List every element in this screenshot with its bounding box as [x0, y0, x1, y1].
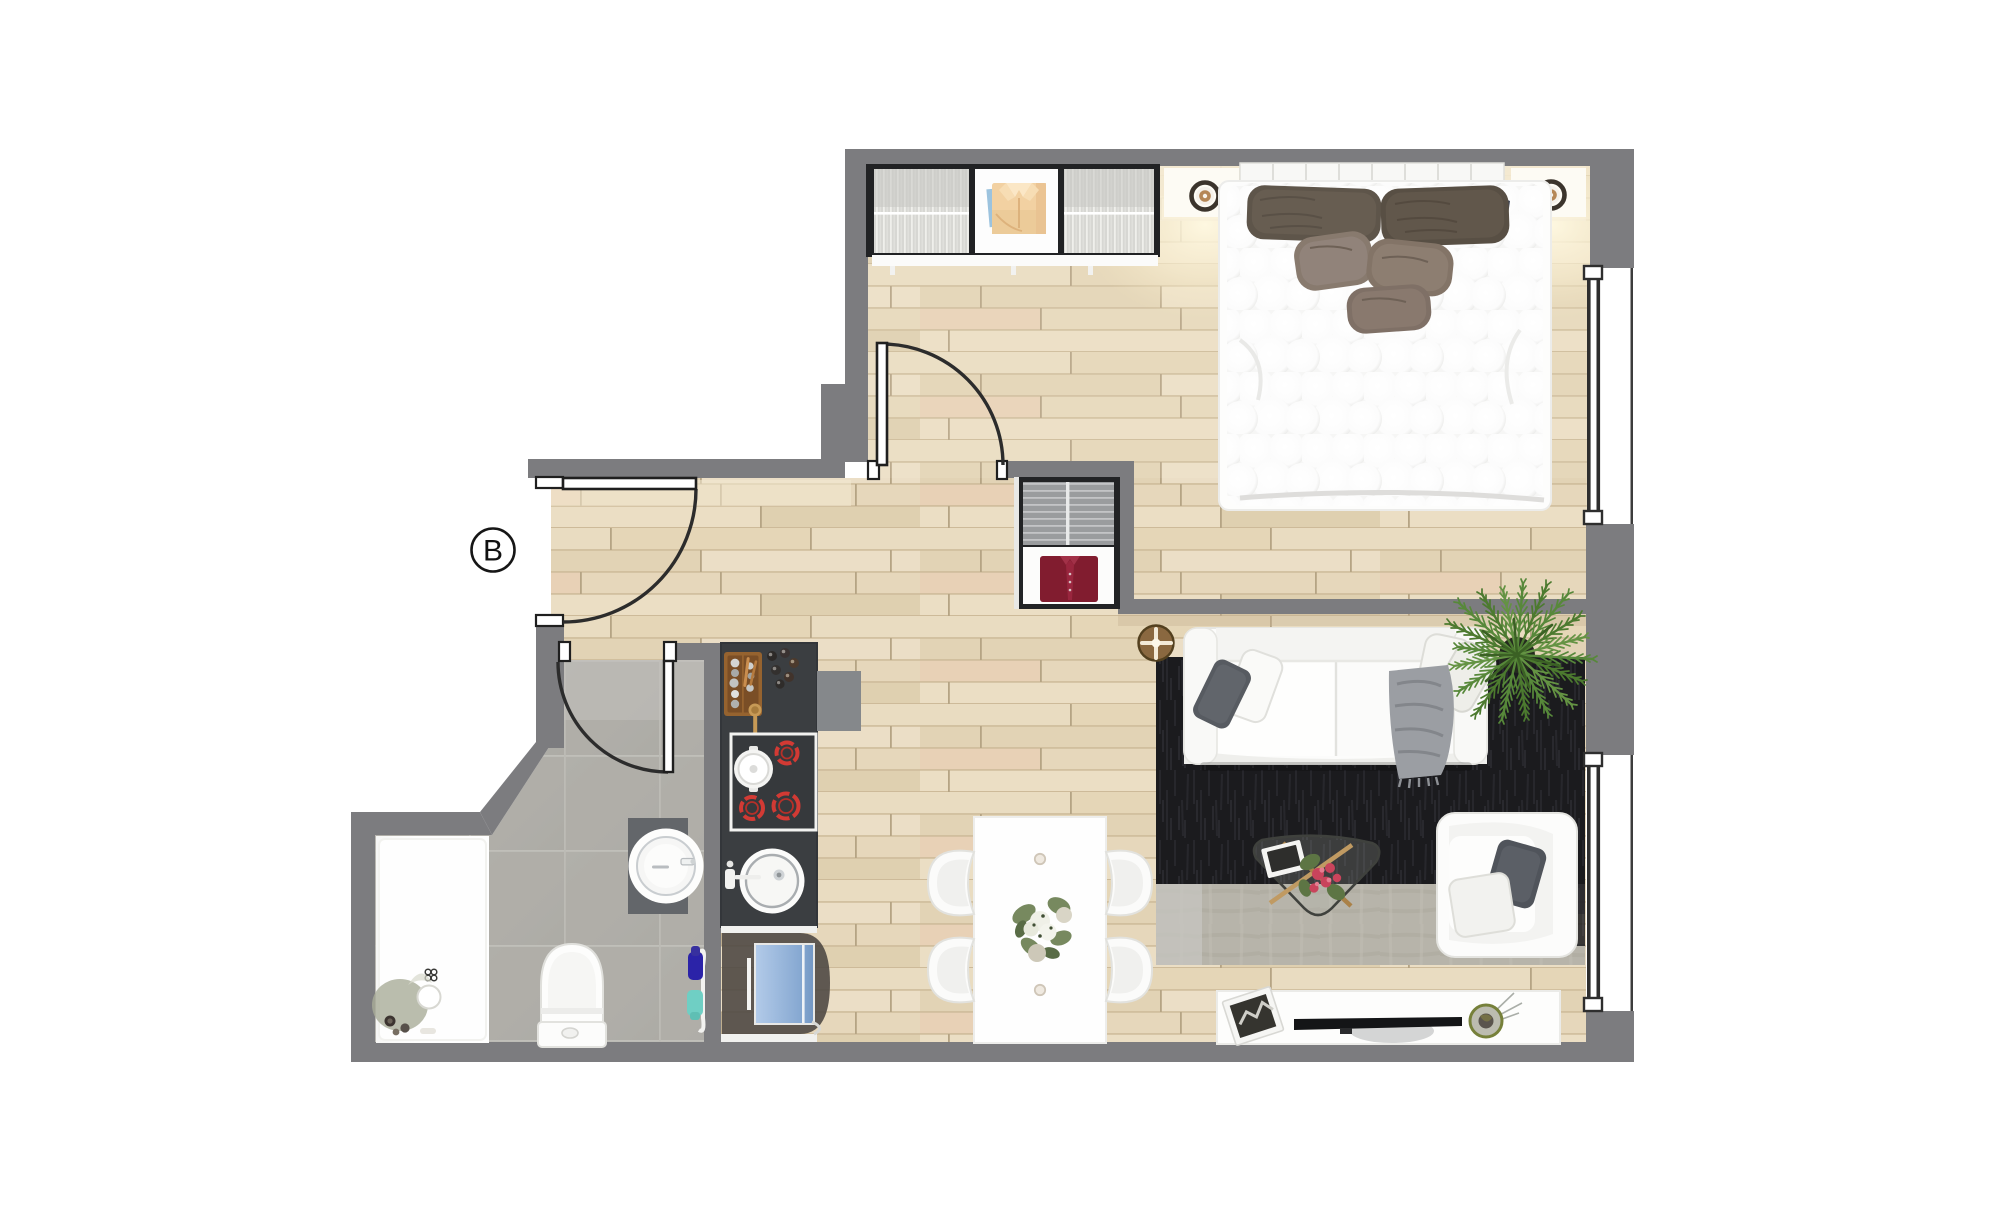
svg-text:B: B [483, 535, 503, 568]
